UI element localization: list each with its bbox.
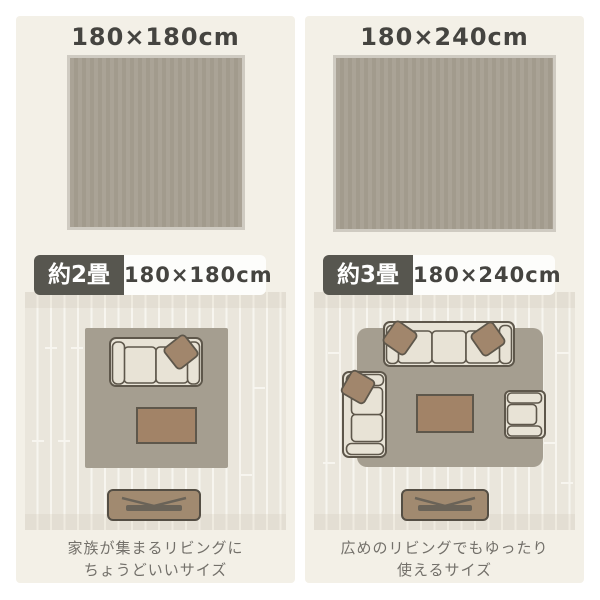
caption-line-1: 広めのリビングでもゆったり — [305, 537, 584, 559]
page: 180×180cm 約2畳 180×180cm — [0, 0, 600, 600]
panel-180x240: 180×240cm 約3畳 180×240cm — [305, 16, 584, 583]
panel-180x180: 180×180cm 約2畳 180×180cm — [16, 16, 295, 583]
rug-swatch-landscape — [333, 55, 556, 232]
panel-caption: 家族が集まるリビングに ちょうどいいサイズ — [16, 537, 295, 581]
room-floor — [314, 292, 575, 530]
size-label: 180×180cm — [124, 255, 266, 295]
panel-caption: 広めのリビングでもゆったり 使えるサイズ — [305, 537, 584, 581]
tv-board-icon — [108, 490, 200, 520]
armchair-icon — [505, 391, 545, 438]
tatami-count-badge: 約3畳 — [323, 255, 413, 295]
room-illustration-3jo — [314, 292, 575, 530]
caption-line-2: 使えるサイズ — [305, 559, 584, 581]
room-floor — [25, 292, 286, 530]
low-table-icon — [137, 408, 196, 443]
rug-swatch-square — [67, 55, 245, 230]
size-badge-row: 約2畳 180×180cm — [34, 255, 266, 295]
size-badge-row: 約3畳 180×240cm — [323, 255, 555, 295]
low-table-icon — [417, 395, 473, 432]
panel-title: 180×240cm — [305, 22, 584, 52]
caption-line-1: 家族が集まるリビングに — [16, 537, 295, 559]
caption-line-2: ちょうどいいサイズ — [16, 559, 295, 581]
tv-board-icon — [402, 490, 488, 520]
size-label: 180×240cm — [413, 255, 555, 295]
panel-title: 180×180cm — [16, 22, 295, 52]
room-illustration-2jo — [25, 292, 286, 530]
tatami-count-badge: 約2畳 — [34, 255, 124, 295]
